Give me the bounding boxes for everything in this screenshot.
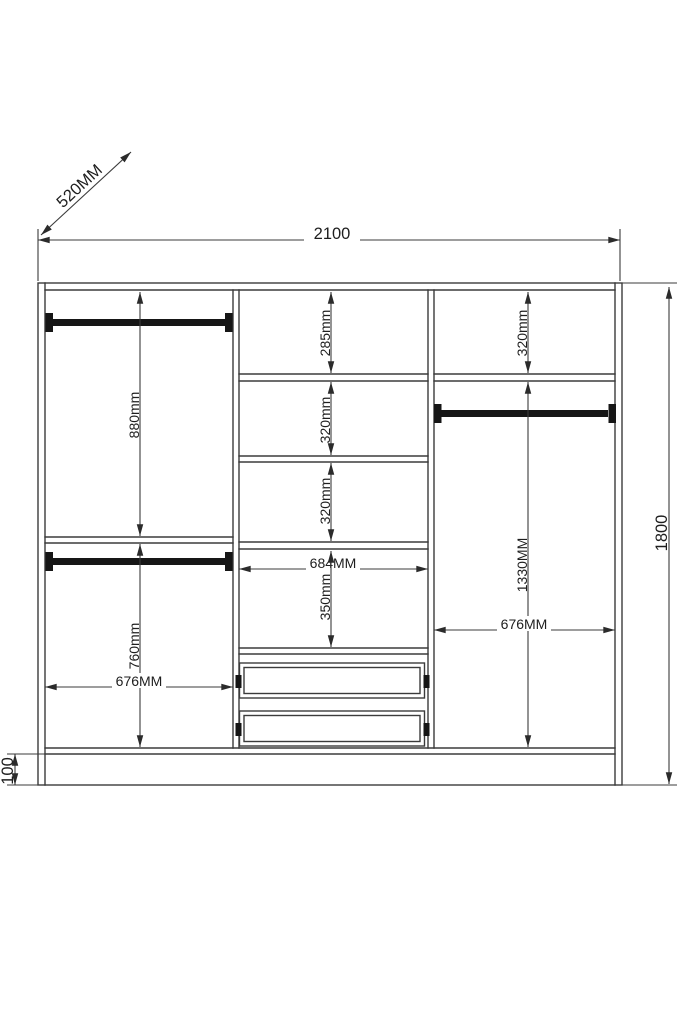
hanging-rail-lower-left [46,552,233,571]
dim-right-hanging-height: 1330MM [514,382,530,747]
rail-end-cap [225,552,233,571]
dim-right-width: 676MM [434,616,615,632]
dim-left-width: 676MM [45,673,233,689]
dim-label-plinth: 100 [0,757,17,785]
drawer-runner-right [424,723,430,736]
dim-overall-height: 1800 [622,283,677,785]
dim-left-upper-height: 880mm [126,292,142,536]
rail-end-cap [609,404,617,423]
drawer-runner-right [424,675,430,688]
dim-label-width: 2100 [314,225,351,243]
drawer-front-inner-panel [244,668,420,694]
rail-end-cap [434,404,442,423]
wardrobe-technical-diagram: 520MM 2100 1800 100 880mm 760mm [0,0,683,1024]
rail-bar [53,558,225,565]
right-compartment [434,374,616,423]
dim-mid-shelf2: 320mm [317,382,333,455]
rail-bar [53,319,225,326]
dim-mid-width: 684MM [239,555,428,571]
dim-label-left-width: 676MM [116,673,163,689]
dim-overall-width: 2100 [38,225,620,281]
blueprint-canvas: 520MM 2100 1800 100 880mm 760mm [0,0,683,1024]
dim-label-depth: 520MM [53,161,106,212]
dim-mid-shelf1: 285mm [317,292,333,373]
dim-label-height: 1800 [653,515,671,552]
hanging-rail-upper-left [46,313,233,332]
drawer-2 [236,711,430,746]
rail-end-cap [46,552,54,571]
wardrobe-structure [38,283,622,785]
dim-label-left-upper: 880mm [126,392,142,439]
rail-end-cap [225,313,233,332]
dim-label-right-width: 676MM [501,616,548,632]
dim-label-right-hanging: 1330MM [514,538,530,592]
drawer-front [240,663,425,698]
dim-label-mid-shelf4: 350mm [317,574,333,621]
dim-label-mid-shelf3: 320mm [317,478,333,525]
rail-end-cap [46,313,54,332]
dim-right-top-height: 320mm [514,292,530,373]
carcass-frame [38,283,622,785]
dim-line-depth [41,152,131,235]
dim-left-lower-height: 760mm [126,544,142,747]
dim-label-mid-width: 684MM [310,555,357,571]
dim-mid-shelf3: 320mm [317,463,333,541]
dimension-annotations: 520MM 2100 1800 100 880mm 760mm [0,152,677,785]
hanging-rail-right [434,404,616,423]
dim-label-right-top: 320mm [514,310,530,357]
drawer-runner-left [236,723,242,736]
outer-frame [38,283,622,785]
drawer-front-inner-panel [244,716,420,742]
dim-label-mid-shelf2: 320mm [317,397,333,444]
drawer-front [240,711,425,746]
rail-bar [441,410,608,417]
drawer-1 [236,663,430,698]
left-compartment [45,313,233,571]
dim-label-left-lower: 760mm [126,623,142,670]
dim-label-mid-shelf1: 285mm [317,310,333,357]
drawer-runner-left [236,675,242,688]
dim-depth: 520MM [41,152,131,235]
